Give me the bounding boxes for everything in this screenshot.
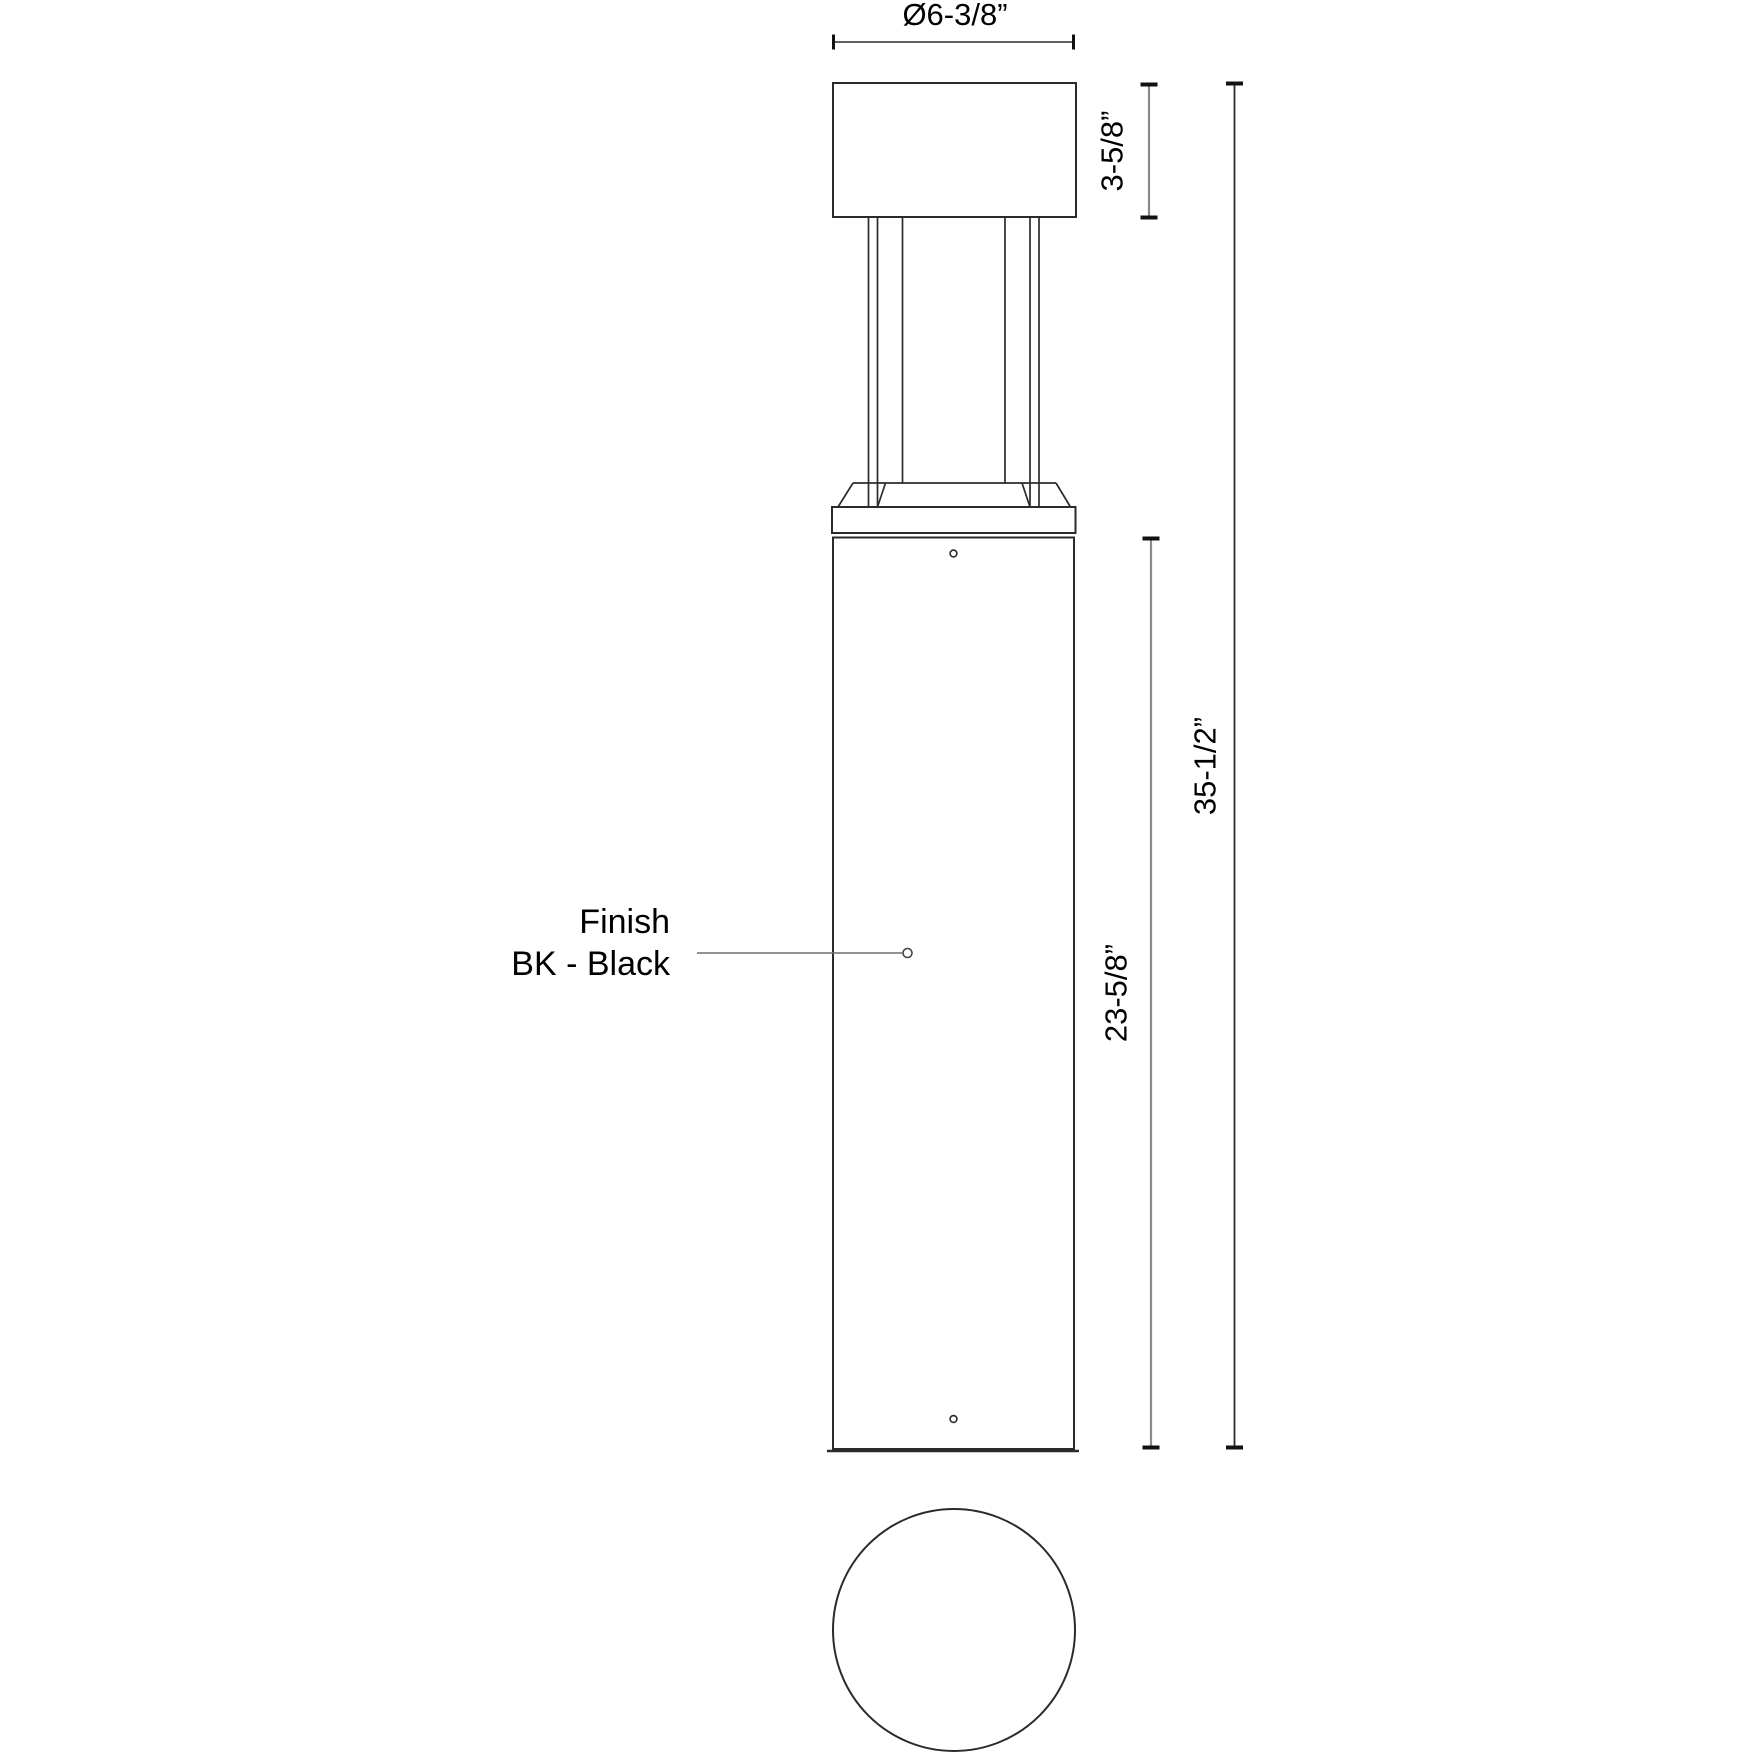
strut-group (869, 217, 1040, 507)
plan-view-circle (833, 1509, 1075, 1751)
overall-height-dimension (1226, 83, 1243, 1448)
body-height-dimension (1143, 538, 1160, 1448)
plan-view (833, 1509, 1075, 1751)
drawing-page: Ø6-3/8” 3-5/8” 35-1/2” 23-5/8” Finish BK… (0, 0, 1760, 1760)
diameter-dimension-label: Ø6-3/8” (902, 0, 1007, 32)
cradle-group (838, 483, 1071, 507)
finish-label-line1: Finish (579, 903, 670, 941)
finish-label-line2: BK - Black (511, 945, 671, 983)
screw-bottom (950, 1416, 957, 1423)
annotation-text-group: Ø6-3/8” 3-5/8” 35-1/2” 23-5/8” Finish BK… (511, 0, 1222, 1042)
cap-height-dimension-label: 3-5/8” (1095, 111, 1130, 192)
cradle-slant-outer-left (838, 483, 853, 507)
body-outline (833, 538, 1074, 1450)
overall-height-dimension-label: 35-1/2” (1188, 717, 1223, 815)
diameter-dimension (833, 35, 1074, 50)
cradle-slant-inner-left (878, 483, 886, 507)
front-elevation-view (827, 83, 1079, 1451)
cap-height-dimension (1141, 84, 1158, 218)
cap-outline (833, 83, 1076, 217)
cradle-slant-outer-right (1056, 483, 1071, 507)
cradle-slant-inner-right (1022, 483, 1030, 507)
finish-leader (697, 949, 912, 958)
body-height-dimension-label: 23-5/8” (1099, 944, 1134, 1042)
finish-leader-dot (903, 949, 912, 958)
screw-top (950, 550, 957, 557)
flange-outline (832, 507, 1076, 533)
technical-drawing-canvas: Ø6-3/8” 3-5/8” 35-1/2” 23-5/8” Finish BK… (0, 0, 1760, 1760)
